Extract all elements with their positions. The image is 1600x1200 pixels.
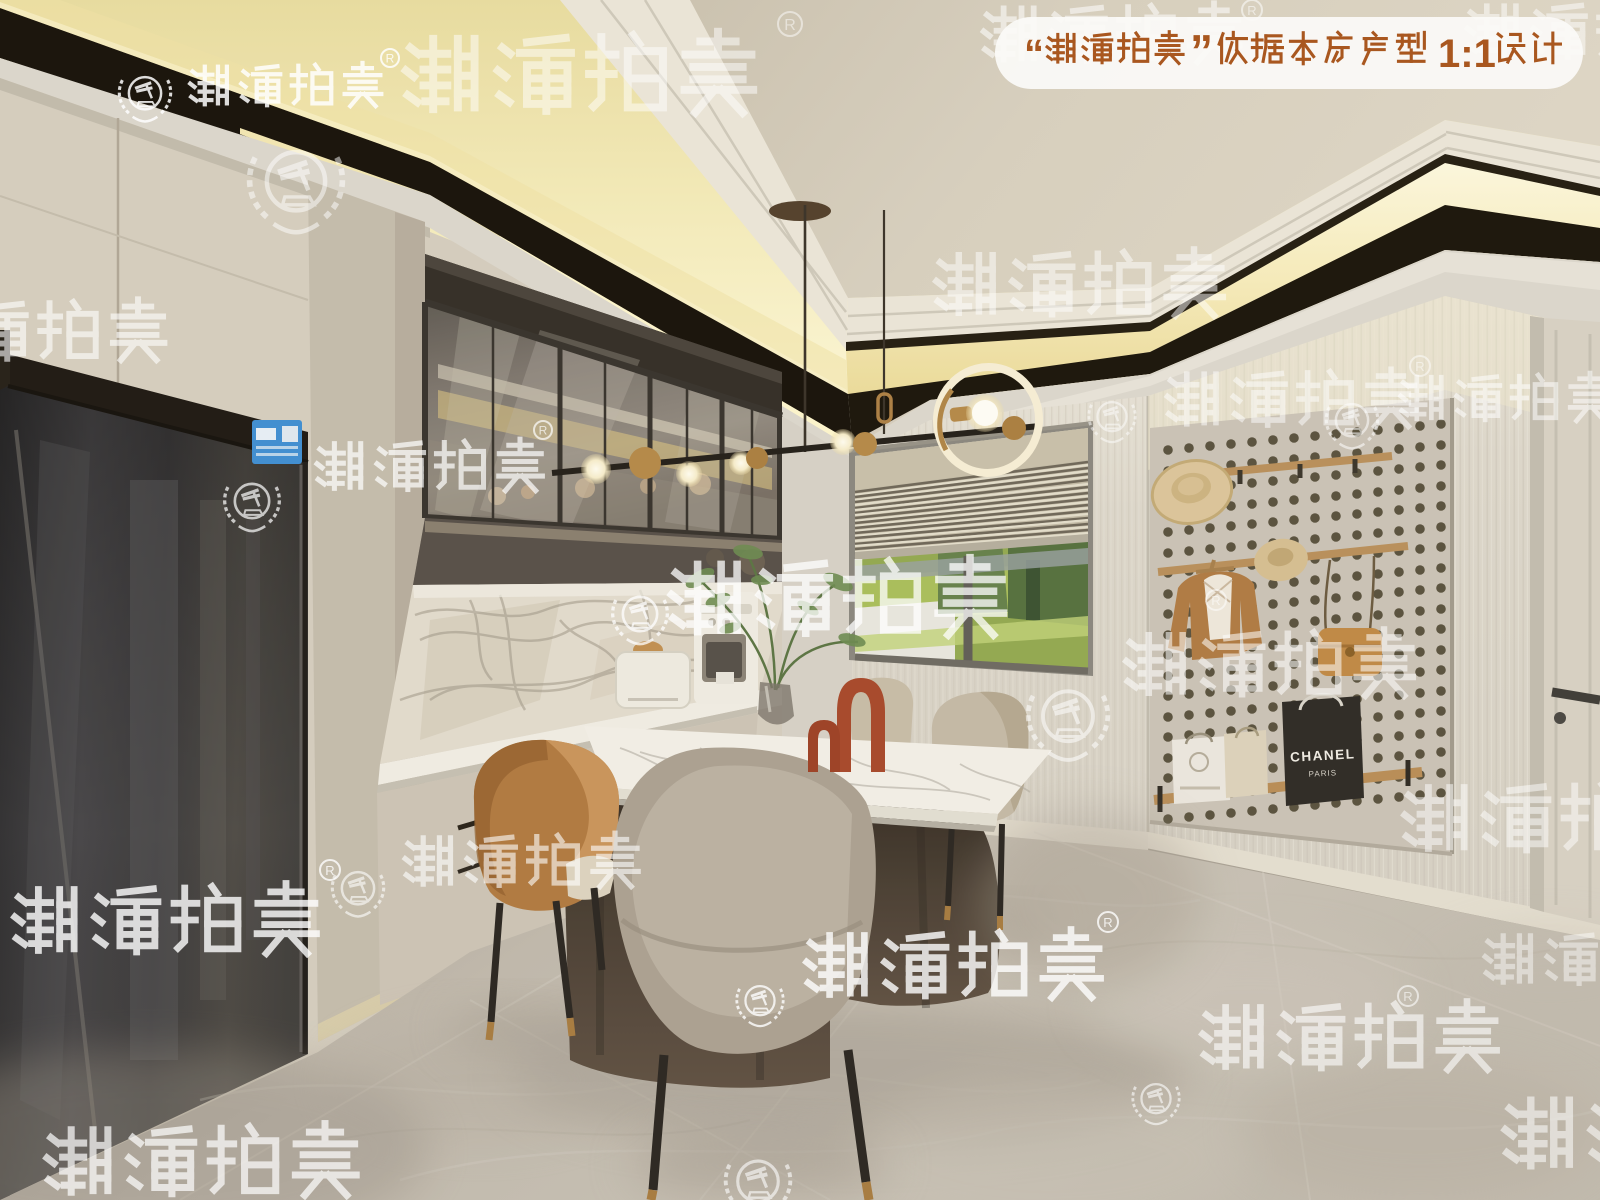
svg-text:R: R bbox=[1247, 3, 1256, 18]
svg-text:1:1: 1:1 bbox=[1438, 32, 1496, 76]
svg-text:R: R bbox=[1415, 359, 1424, 374]
svg-text:“: “ bbox=[1024, 32, 1044, 76]
svg-text:R: R bbox=[784, 17, 796, 34]
svg-text:R: R bbox=[1211, 593, 1220, 608]
svg-text:R: R bbox=[1403, 989, 1412, 1004]
svg-text:R: R bbox=[386, 52, 395, 66]
svg-text:R: R bbox=[325, 863, 334, 878]
svg-text:R: R bbox=[539, 424, 548, 438]
svg-text:R: R bbox=[1103, 915, 1112, 930]
svg-text:”: ” bbox=[1190, 25, 1213, 77]
